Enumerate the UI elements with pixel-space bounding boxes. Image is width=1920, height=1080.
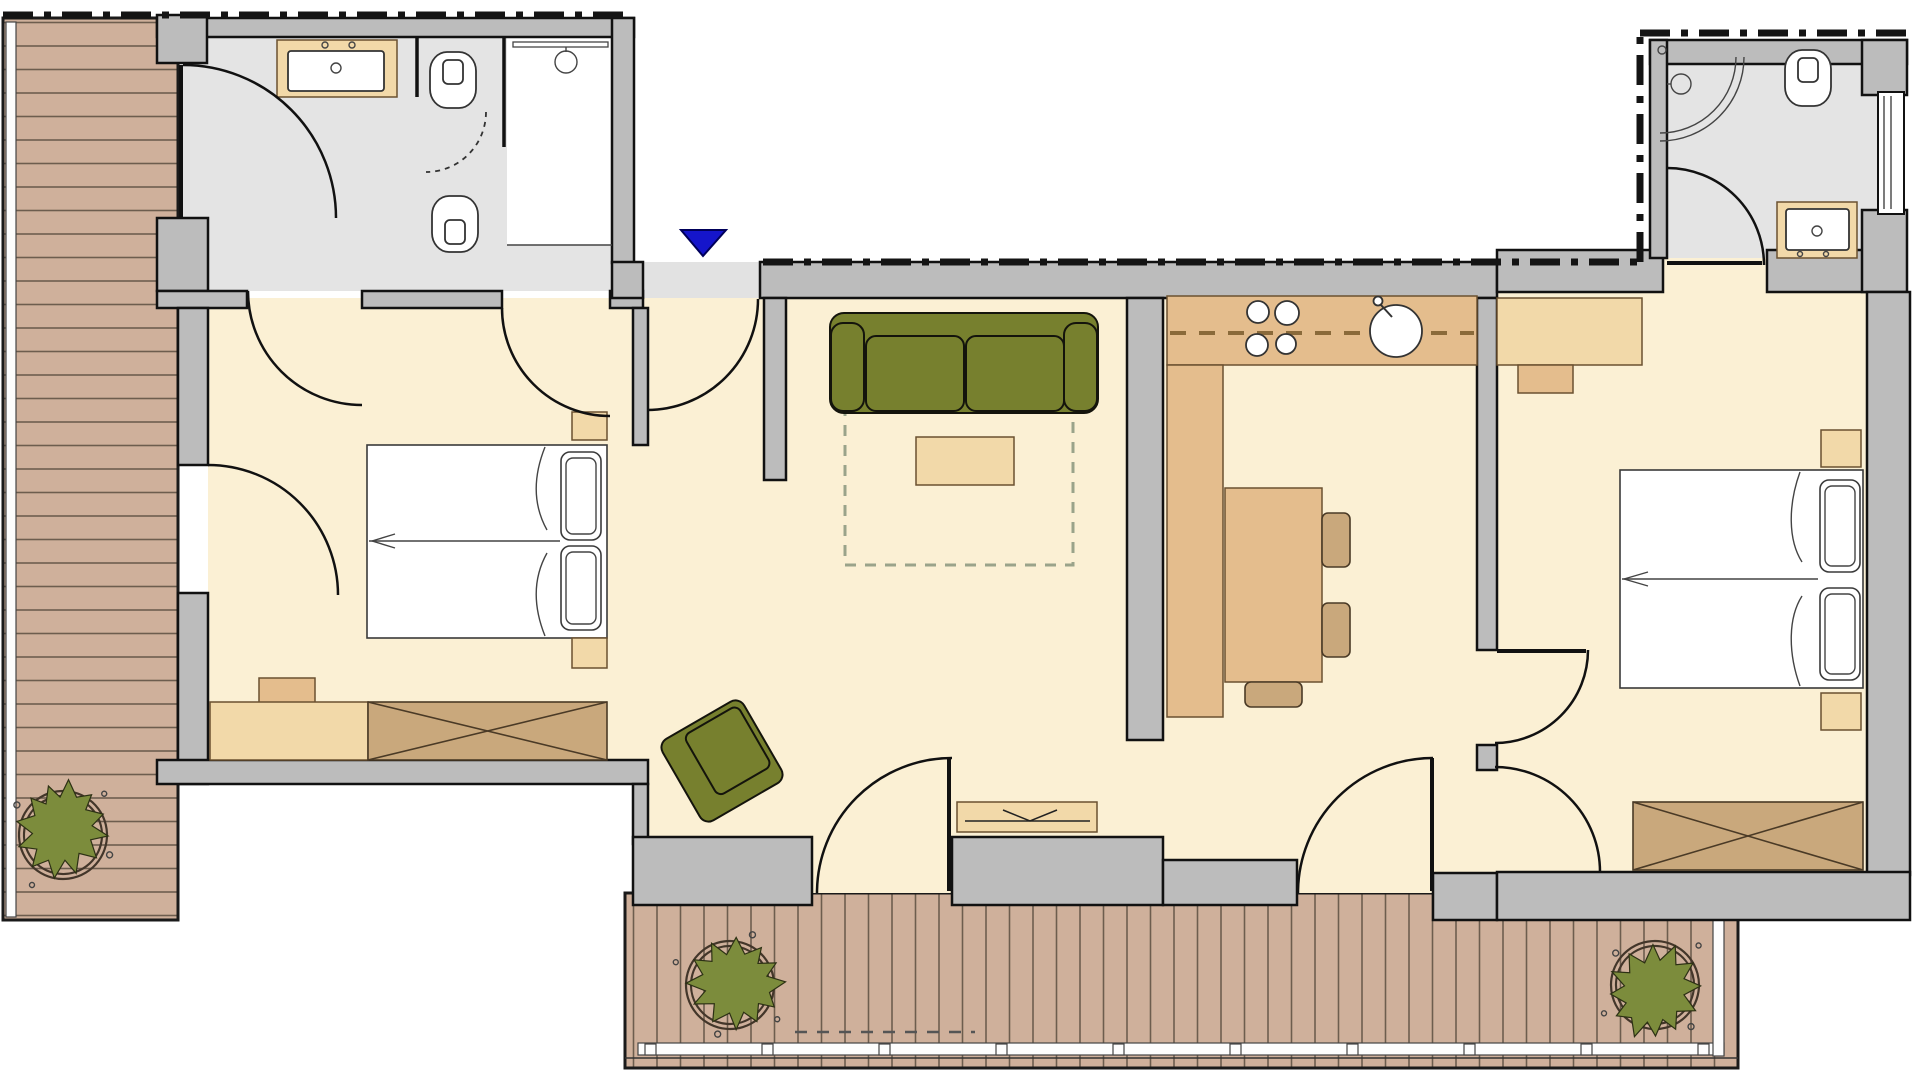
window-bathroom-right [1878, 92, 1904, 214]
desk [1497, 298, 1642, 365]
pillow [1820, 588, 1860, 680]
coffee-table [916, 437, 1014, 485]
sofa [830, 313, 1098, 413]
double-bed-right [1620, 470, 1863, 688]
deck-south-railing-right [1713, 920, 1724, 1056]
bench [210, 702, 368, 760]
desk-chair [1518, 365, 1573, 393]
deck-left-railing [6, 22, 16, 917]
floor-plan-page [0, 0, 1920, 1080]
shower-tray-left [507, 37, 612, 245]
floor-plan-canvas [0, 0, 1920, 1080]
wardrobe-left [368, 702, 607, 760]
kitchen-counter-top [1167, 296, 1477, 365]
nightstand [1821, 430, 1861, 467]
kitchen-counter-side [1167, 365, 1223, 717]
chair [1245, 682, 1302, 707]
nightstand [572, 638, 607, 668]
washbasin [288, 51, 384, 91]
pillow [1820, 480, 1860, 572]
tv-sideboard [957, 802, 1097, 832]
toilet-icon [430, 52, 476, 108]
dining-table [1225, 488, 1322, 682]
nightstand [1821, 693, 1861, 730]
entrance-marker-triangle-icon [681, 230, 726, 256]
double-bed-left [367, 445, 607, 638]
toilet-icon [1785, 50, 1831, 106]
deck-south-railing [638, 1043, 1724, 1055]
chair [1322, 513, 1350, 567]
pillow [561, 546, 601, 630]
wardrobe-right [1633, 802, 1863, 870]
deck-left [0, 18, 178, 920]
dresser [259, 678, 315, 704]
washbasin [1786, 209, 1849, 250]
pillow [561, 452, 601, 540]
chair [1322, 603, 1350, 657]
toilet-icon [432, 196, 478, 252]
